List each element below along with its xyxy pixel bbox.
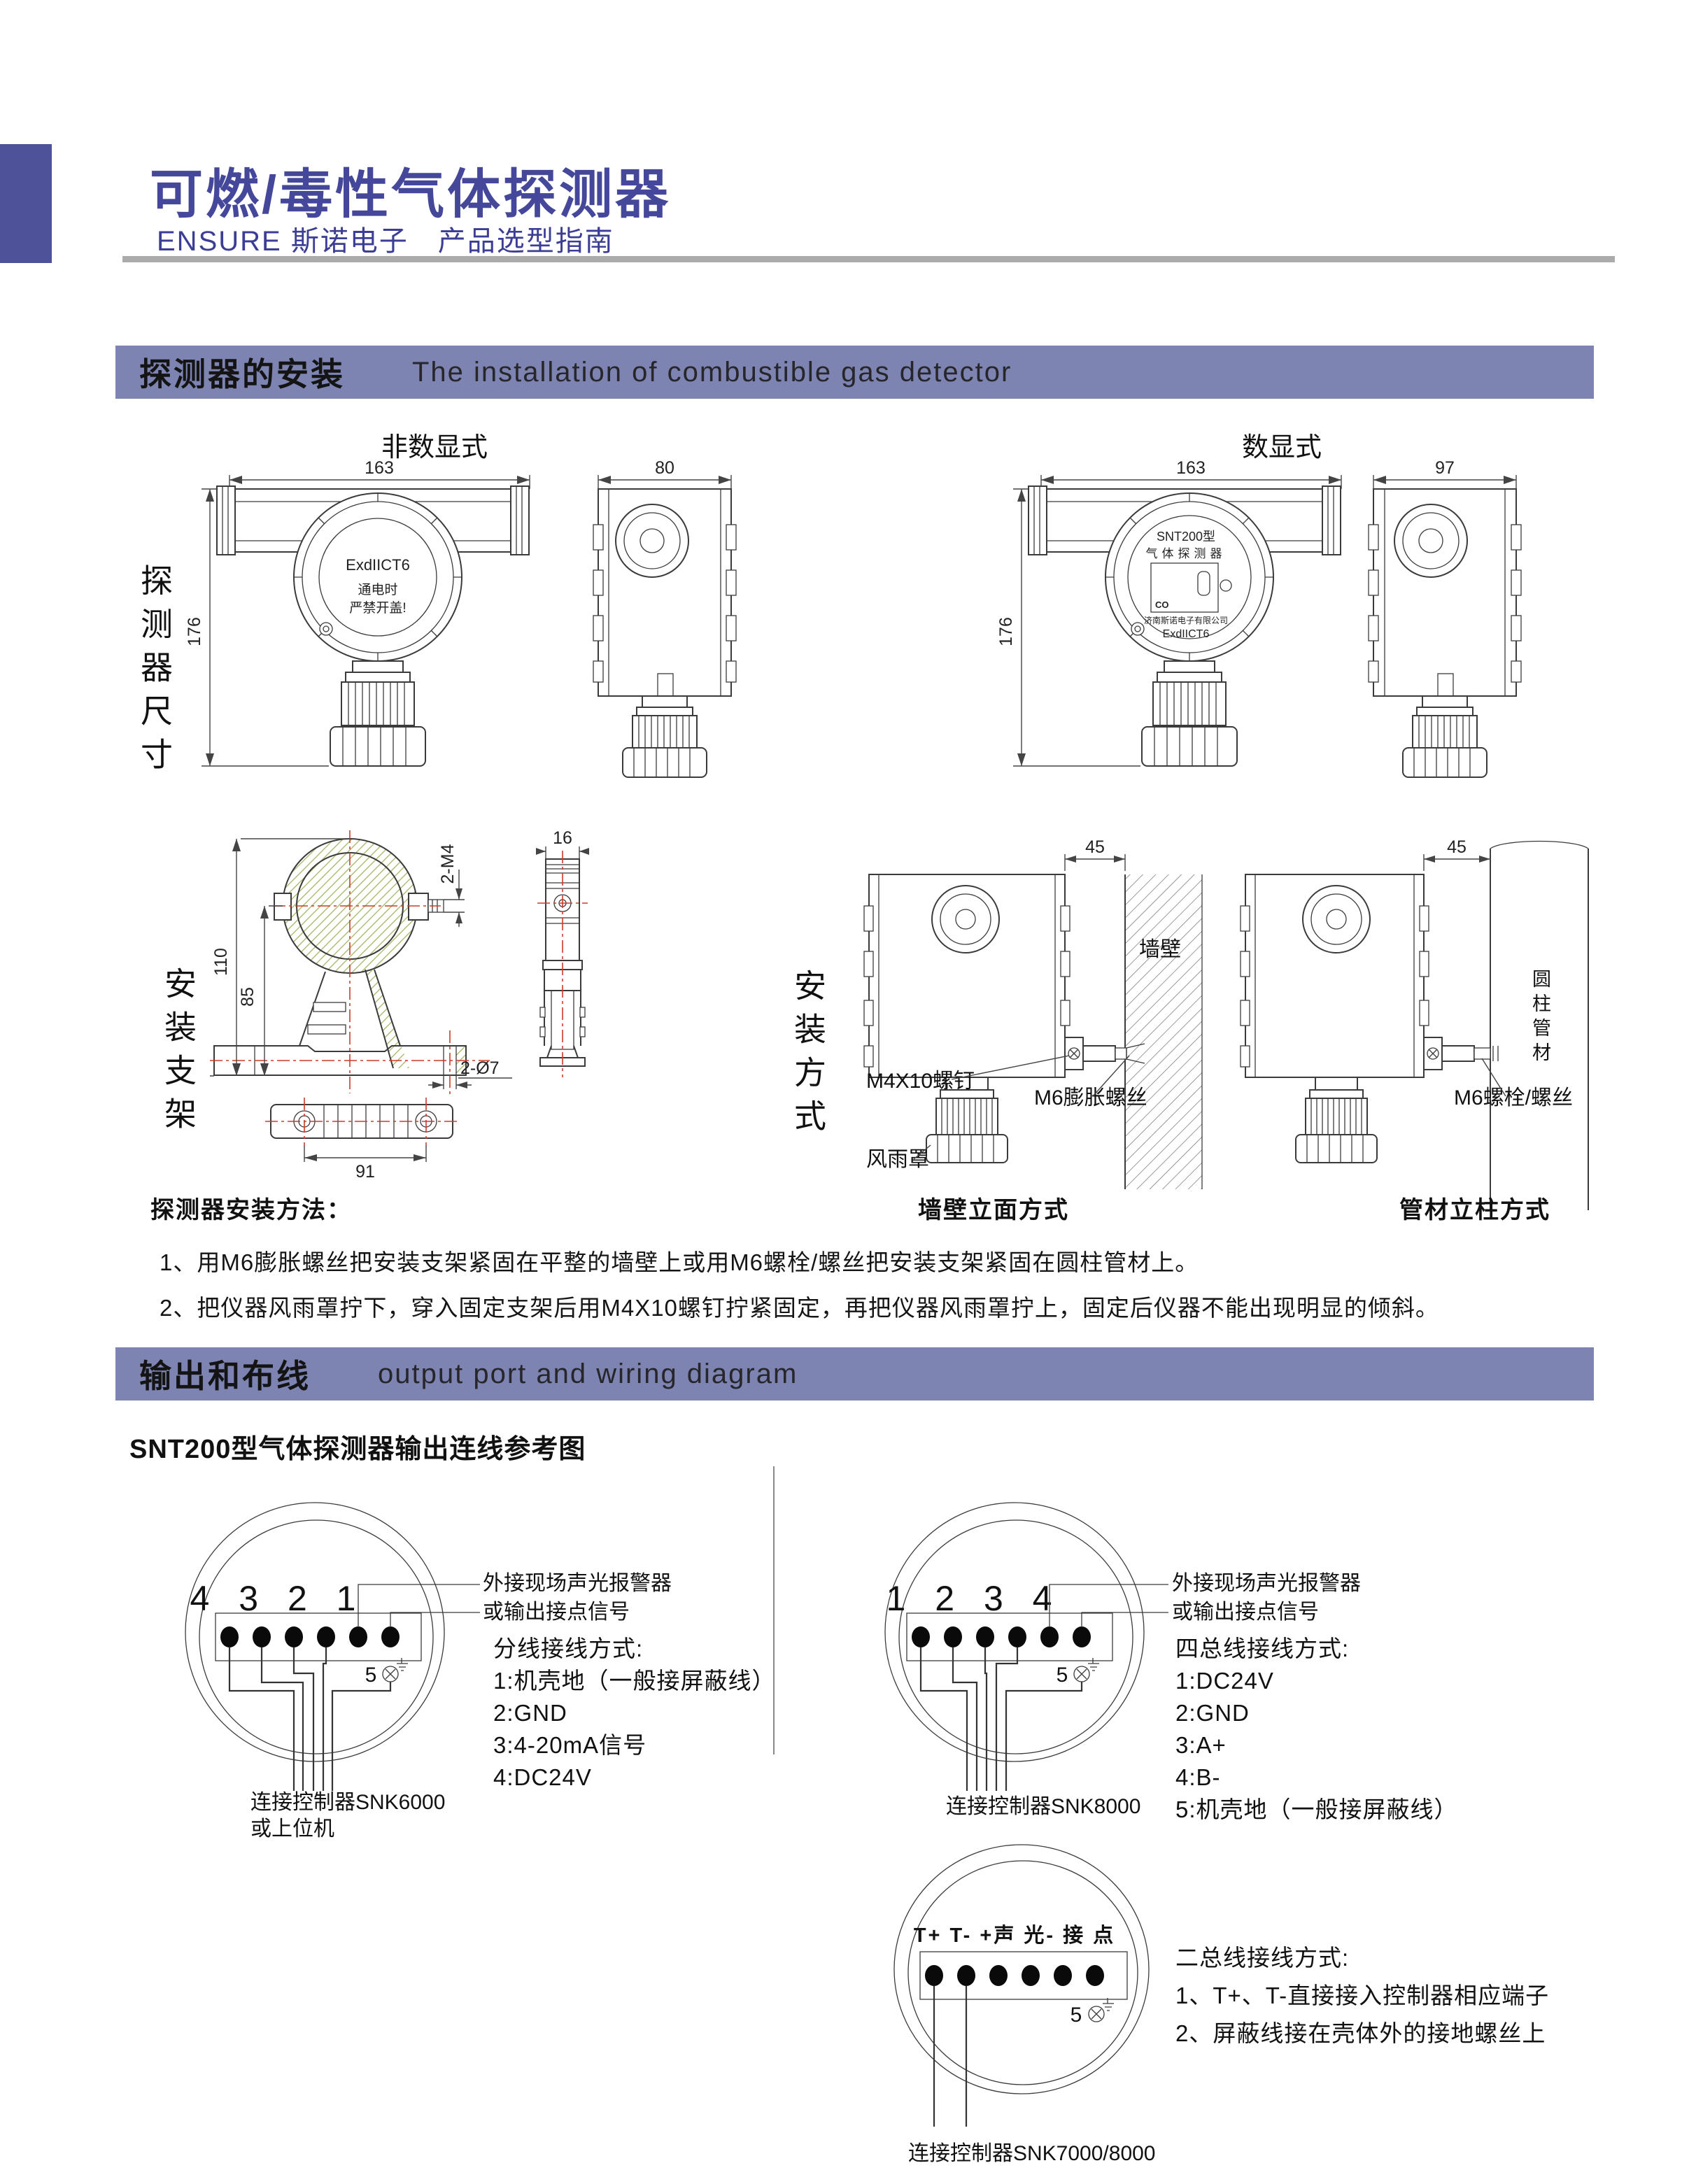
install-method-item2: 2、把仪器风雨罩拧下，穿入固定支架后用M4X10螺钉拧紧固定，再把仪器风雨罩拧上… [160,1289,1439,1323]
dim-2d7: 2-Ø7 [460,1058,500,1078]
d-front-sensor [1142,661,1237,766]
wiring1-note-line2: 或输出接点信号 [483,1601,630,1624]
wiring1-item-4: 4:DC24V [493,1764,592,1790]
wiring2-terminal-numbers: 1 2 3 4 [886,1579,1062,1618]
dim-97: 97 [1435,458,1455,478]
d-side-dimension: 97 [1373,458,1516,489]
wiring2-item-2: 2:GND [1175,1700,1250,1726]
row-label-bracket: 安装支架 [155,967,202,1140]
d-front-drawing: 163 176 SNT200型 气体探测器 CO 济南斯诺电子有限公司 ExdI… [980,458,1361,780]
nd-front-drawing: 163 176 ExdIICT6 通电时 严禁开盖! [168,458,549,780]
dim-176-d: 176 [996,617,1016,646]
wall-screw-label: M4X10螺钉 [866,1070,975,1093]
d-side-drawing: 97 [1326,458,1564,780]
bracket-column [299,970,409,1068]
wall-detector-body [864,874,1070,1077]
dim-85: 85 [238,987,257,1007]
dim-16: 16 [553,828,572,848]
nd-side-dimension: 80 [598,458,731,489]
header-rule [122,256,1615,262]
bracket-bottom-drawing: 91 [269,1102,465,1186]
section2-title-en: output port and wiring diagram [378,1359,798,1390]
wiring1-ctrl-line2: 或上位机 [250,1817,334,1841]
section-bar-installation: 探测器的安装 The installation of combustible g… [115,346,1594,399]
nd-front-sensor [330,661,425,766]
row-label-mounting: 安装方式 [785,969,831,1142]
pipe-annotations: M6螺栓/螺丝 [1454,1058,1573,1109]
nd-face-warn2: 严禁开盖! [349,600,406,616]
wiring3-gnd-number: 5 [1070,2004,1082,2027]
wiring1-note-line1: 外接现场声光报警器 [483,1572,672,1595]
wall-dim-45: 45 [1065,837,1125,871]
wiring1-item-2: 2:GND [493,1700,567,1726]
wiring1-gnd-number: 5 [365,1664,377,1687]
wall-mount-caption: 墙壁立面方式 [918,1191,1069,1225]
pipe-mount-drawing: 45 [1238,836,1630,1217]
wiring2-note-line2: 或输出接点信号 [1172,1601,1319,1624]
wiring3-controller-label: 连接控制器SNK7000/8000 [908,2142,1156,2165]
d-face-cert: ExdIICT6 [1163,628,1210,640]
page-subtitle: ENSURE 斯诺电子 产品选型指南 [157,218,614,259]
wiring1-method-title: 分线接线方式: [493,1636,643,1661]
d-face-model: SNT200型 [1157,530,1215,544]
nd-side-drawing: 80 [546,458,784,780]
pipe-surface-label-text: 圆柱管材 [1527,969,1554,1067]
dim-91: 91 [355,1162,375,1182]
nd-front-body: ExdIICT6 通电时 严禁开盖! [217,486,529,661]
wiring3-item-1: 1、T+、T-直接接入控制器相应端子 [1175,1983,1549,2008]
dim-45-wall: 45 [1085,837,1105,857]
dim-163: 163 [365,458,394,478]
wiring2-gnd-number: 5 [1057,1664,1068,1687]
nd-face-warn1: 通电时 [358,582,397,597]
wiring2-method-title: 四总线接线方式: [1175,1636,1349,1661]
d-face-name: 气体探测器 [1146,547,1227,560]
wall-surface-label: 墙壁 [1139,938,1181,961]
nd-side-sensor [623,696,707,777]
wiring2-method-list: 四总线接线方式: 1:DC24V 2:GND 3:A+ 4:B- 5:机壳地（一… [1175,1636,1458,1822]
pipe-detector-body [1241,874,1429,1077]
header-accent-block [0,144,52,263]
wall: 墙壁 [1125,874,1202,1189]
wiring1-method-list: 分线接线方式: 1:机壳地（一般接屏蔽线） 2:GND 3:4-20mA信号 4… [493,1636,776,1790]
pipe-bracket-arm [1424,1037,1498,1070]
dim-2m4: 2-M4 [438,844,458,884]
dim-45-pipe: 45 [1447,837,1467,857]
pipe-dim-45: 45 [1424,837,1490,871]
wiring3-wires [934,1986,966,2127]
wiring1-ctrl-line1: 连接控制器SNK6000 [250,1791,445,1814]
d-face-gas: CO [1155,600,1169,610]
dim-163-d: 163 [1176,458,1206,478]
wiring-diagram-twobus: T+ T- +声 光- 接 点 5 二总线接线方式: 1、T+、T-直接接入控制… [798,1833,1623,2183]
dim-176: 176 [185,617,204,646]
wiring1-terminal-numbers: 4 3 2 1 [190,1579,366,1618]
wiring1-ground: 5 [365,1658,408,1687]
catalog-page: 可燃/毒性气体探测器 ENSURE 斯诺电子 产品选型指南 探测器的安装 The… [0,0,1703,2184]
wiring1-item-1: 1:机壳地（一般接屏蔽线） [493,1668,776,1694]
d-face-company: 济南斯诺电子有限公司 [1144,615,1228,625]
d-side-sensor [1403,696,1487,777]
wiring-divider [773,1466,775,1754]
section1-title-en: The installation of combustible gas dete… [412,357,1012,388]
wiring-heading: SNT200型气体探测器输出连线参考图 [129,1427,586,1466]
bracket-bottom-dimension: 91 [304,1145,426,1182]
install-method-item1: 1、用M6膨胀螺丝把安装支架紧固在平整的墙壁上或用M6螺栓/螺丝把安装支架紧固在… [160,1244,1199,1277]
wiring2-item-3: 3:A+ [1175,1732,1227,1758]
bracket-side-drawing: 16 [539,832,637,1091]
wiring3-method-list: 二总线接线方式: 1、T+、T-直接接入控制器相应端子 2、屏蔽线接在壳体外的接… [1175,1945,1549,2046]
wiring3-item-2: 2、屏蔽线接在壳体外的接地螺丝上 [1175,2020,1546,2046]
nd-side-body [593,489,736,696]
d-side-body [1369,489,1521,696]
wiring2-controller-label: 连接控制器SNK8000 [946,1795,1140,1818]
wall-mount-drawing: 墙壁 45 [847,836,1238,1217]
wiring3-method-title: 二总线接线方式: [1175,1945,1349,1971]
install-method-heading: 探测器安装方法： [150,1191,352,1225]
dim-110: 110 [211,948,231,976]
section1-title-zh: 探测器的安装 [139,349,345,395]
pipe-bolt-label: M6螺栓/螺丝 [1454,1086,1573,1109]
section2-title-zh: 输出和布线 [139,1351,311,1397]
wiring2-item-4: 4:B- [1175,1764,1221,1790]
wiring2-note-line1: 外接现场声光报警器 [1172,1572,1361,1595]
wall-anchor-label: M6膨胀螺丝 [1034,1086,1147,1109]
page-title: 可燃/毒性气体探测器 [150,151,671,228]
pipe-detector-sensor [1296,1077,1377,1163]
wiring2-item-5: 5:机壳地（一般接屏蔽线） [1175,1796,1458,1822]
dim-80: 80 [655,458,674,478]
section-bar-wiring: 输出和布线 output port and wiring diagram [115,1347,1594,1401]
nd-face-cert: ExdIICT6 [346,556,410,574]
wiring2-ground: 5 [1057,1658,1099,1687]
wiring-diagram-branch: 4 3 2 1 5 外接现场声光报警器 或输出接点信号 [161,1483,777,1910]
wiring2-item-1: 1:DC24V [1175,1668,1274,1694]
pipe-mount-caption: 管材立柱方式 [1399,1191,1550,1225]
wall-cover-label: 风雨罩 [866,1148,929,1171]
d-front-body: SNT200型 气体探测器 CO 济南斯诺电子有限公司 ExdIICT6 [1029,486,1341,661]
wiring1-item-3: 3:4-20mA信号 [493,1732,646,1758]
wiring3-terminal-labels: T+ T- +声 光- 接 点 [914,1924,1115,1947]
wiring1-controller-label: 连接控制器SNK6000 或上位机 [250,1791,445,1841]
wiring3-ground: 5 [1070,1998,1114,2027]
